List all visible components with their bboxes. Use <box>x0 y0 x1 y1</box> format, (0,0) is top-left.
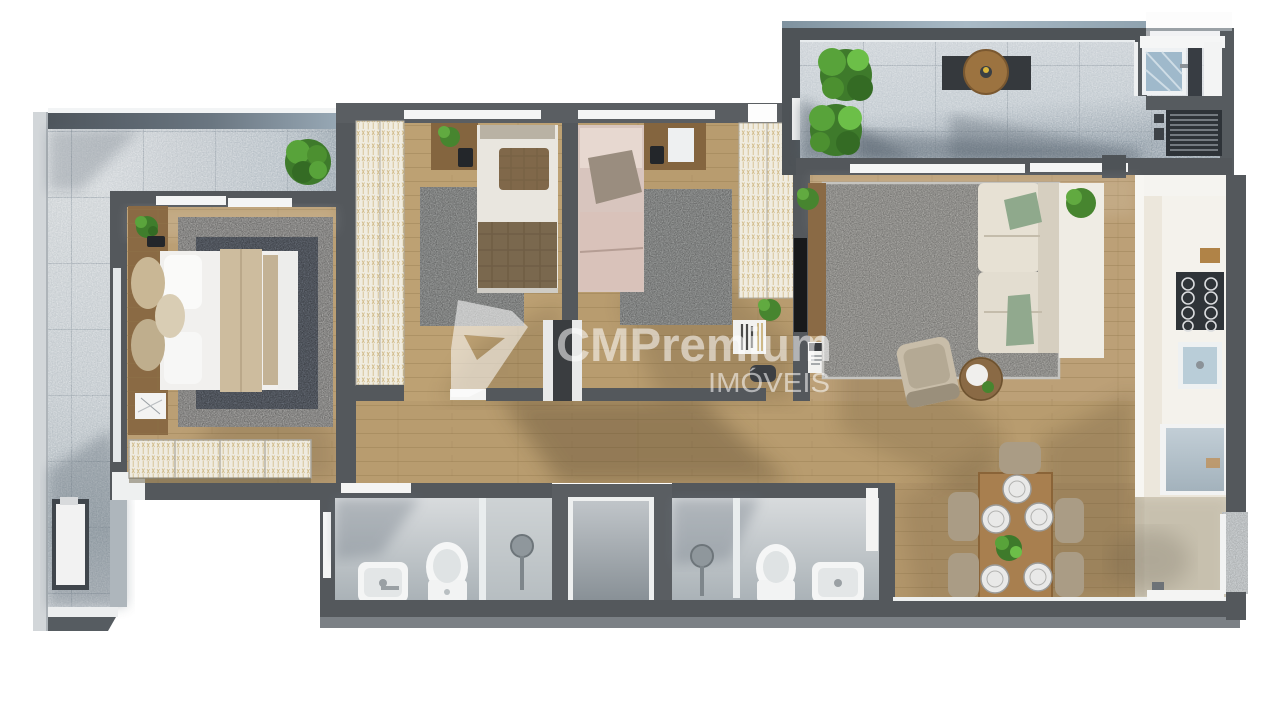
svg-text:CMPremium: CMPremium <box>556 318 832 371</box>
svg-text:IMÓVEIS: IMÓVEIS <box>708 367 830 398</box>
